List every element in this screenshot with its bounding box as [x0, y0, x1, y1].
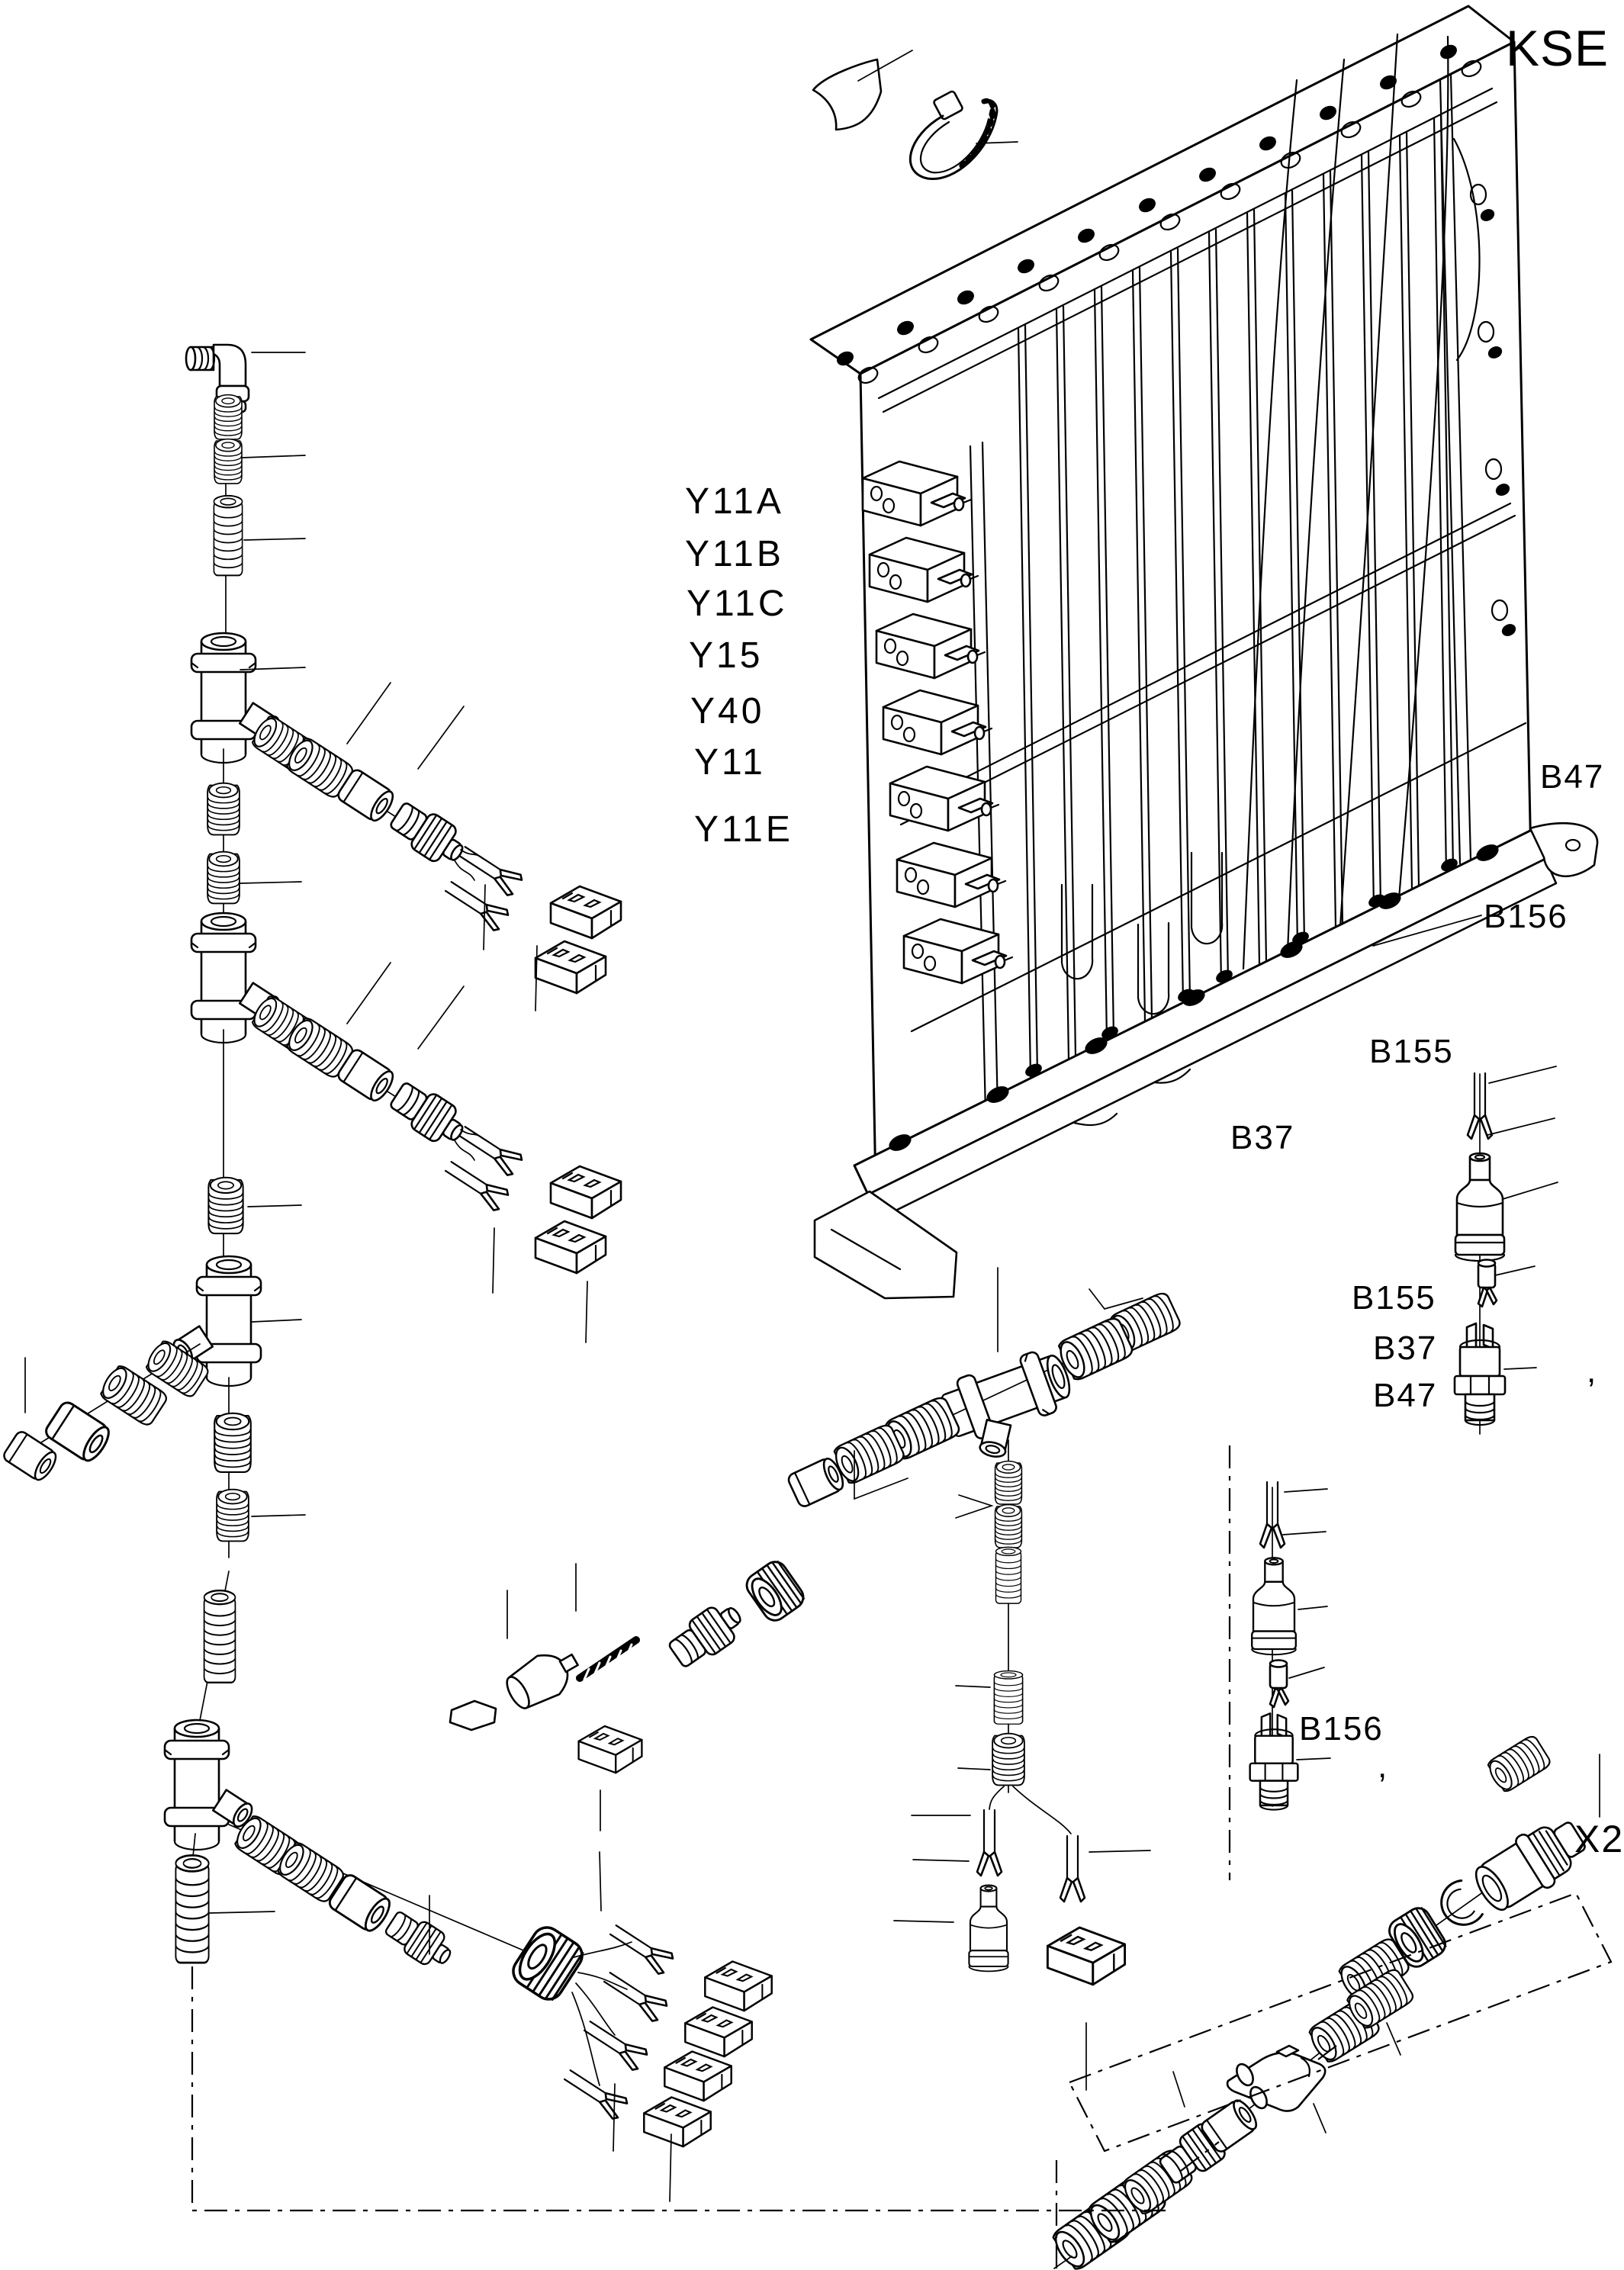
sensor-b155	[1455, 1153, 1504, 1261]
cable-tie	[910, 91, 997, 179]
label-b156-lower: B156	[1299, 1710, 1384, 1748]
label-b156-top: B156	[1484, 898, 1568, 935]
middle-tee-chain	[450, 1291, 1182, 1985]
ribbed-sleeve-long	[175, 1855, 208, 1963]
left-harness-chain	[165, 345, 282, 1963]
branch-connector-set-1	[249, 713, 621, 993]
threaded-bushing	[207, 852, 240, 904]
branch-connector-set-4	[229, 1813, 772, 2146]
label-y40: Y40	[690, 691, 764, 731]
b156-sensor-chain	[1250, 1482, 1298, 1810]
ribbed-sleeve	[204, 1590, 236, 1683]
label-kse: KSE	[1506, 20, 1609, 76]
threaded-bushing	[208, 1178, 243, 1233]
tick-mark-1: ,	[1378, 1748, 1388, 1785]
exploded-parts-diagram-page: KSE Y11A Y11B Y11C Y15 Y40 Y11 Y11E B47 …	[0, 0, 1624, 2270]
sensor-b156	[1252, 1558, 1296, 1654]
adapter	[1270, 1661, 1288, 1708]
tick-mark-2: ,	[1587, 1352, 1597, 1390]
pressure-switch-b156	[1250, 1713, 1298, 1809]
label-b37: B37	[1230, 1119, 1294, 1156]
b155-sensor-chain	[1455, 1073, 1505, 1434]
threaded-bushing	[214, 1413, 251, 1472]
label-b47-stack: B47	[1373, 1377, 1437, 1414]
adapter	[1478, 1260, 1497, 1307]
x2-connector-assembly	[1049, 1734, 1593, 2270]
label-y11c: Y11C	[687, 584, 788, 624]
blade-terminal	[450, 1701, 496, 1730]
label-y15: Y15	[689, 635, 763, 676]
ribbed-sleeve	[214, 496, 242, 576]
threaded-bushing	[217, 1490, 249, 1542]
branch-connector-set-3	[2, 1338, 211, 1484]
label-y11e: Y11E	[694, 809, 793, 850]
left-mounting-foot	[815, 1191, 957, 1298]
threaded-bushing	[214, 395, 242, 439]
rubber-boot	[500, 1641, 586, 1715]
label-y11: Y11	[694, 742, 766, 783]
label-b47-top: B47	[1540, 758, 1604, 796]
label-y11b: Y11B	[685, 534, 784, 574]
flag-tag	[813, 59, 881, 130]
label-b155-top: B155	[1369, 1033, 1454, 1070]
phantom-lines	[192, 1445, 1611, 2270]
label-b155-stack: B155	[1352, 1279, 1436, 1317]
branch-connector-set-2	[249, 993, 621, 1273]
threaded-bushing	[207, 783, 240, 835]
label-x2: X2	[1574, 1818, 1624, 1860]
kse-exploded-diagram: KSE Y11A Y11B Y11C Y15 Y40 Y11 Y11E B47 …	[0, 0, 1624, 2270]
middle-sensor	[969, 1886, 1008, 1972]
label-y11a: Y11A	[685, 481, 784, 522]
label-b37-stack: B37	[1373, 1330, 1437, 1367]
threaded-bushing	[214, 439, 242, 484]
